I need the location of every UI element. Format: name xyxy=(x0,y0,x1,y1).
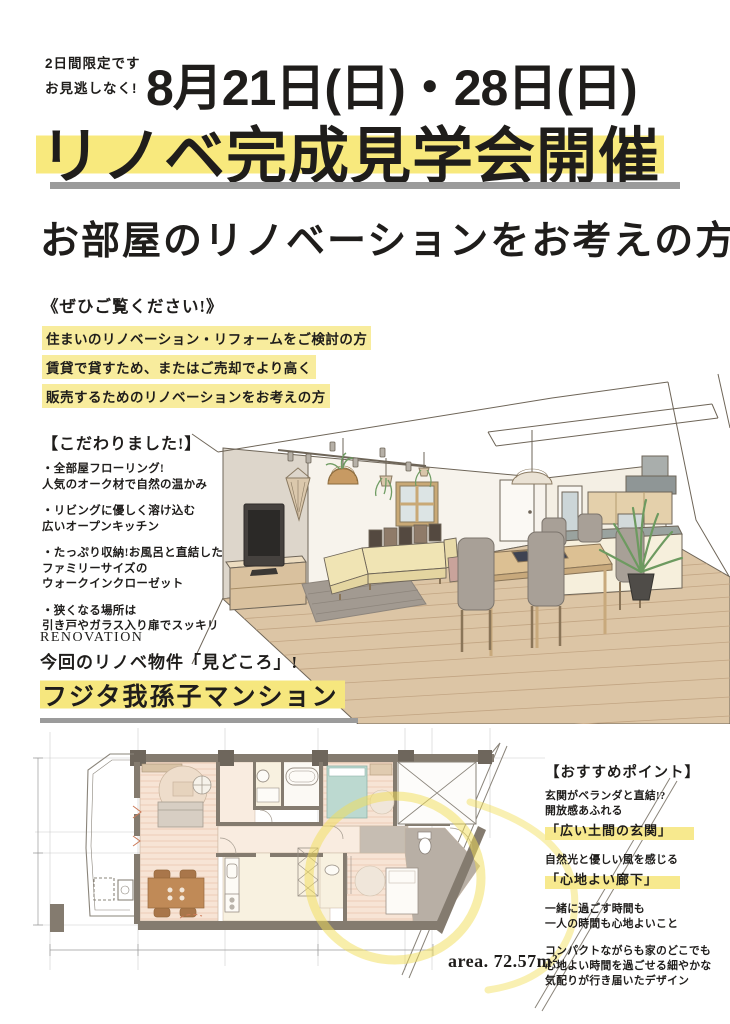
points-line: 玄関がベランダと直結!? xyxy=(545,789,727,804)
kodawari-heading: 【こだわりました!】 xyxy=(42,430,242,454)
divider-bar-renovation xyxy=(40,718,358,723)
tv xyxy=(244,504,284,576)
kodawari-item: ・全部屋フローリング! 人気のオーク材で自然の温かみ xyxy=(42,462,242,493)
headline: お部屋のリノベーションをお考えの方 xyxy=(40,210,730,266)
kodawari-line: ウォークインクローゼット xyxy=(42,577,242,593)
window xyxy=(396,482,438,526)
property-name: フジタ我孫子マンション xyxy=(40,676,345,714)
points-line: 開放感あふれる xyxy=(545,804,727,819)
points-group: 自然光と優しい風を感じる 「心地よい廊下」 xyxy=(545,853,727,890)
renovation-subtitle: 今回のリノベ物件「見どころ」! xyxy=(40,648,358,673)
limited-note-line1: 2日間限定です xyxy=(45,52,141,77)
invite-heading: 《ぜひご覧ください!》 xyxy=(42,293,371,317)
kodawari-line: ・たっぷり収納!お風呂と直結した xyxy=(42,546,242,562)
flyer-page: 2日間限定です お見逃しなく! 8月21日(日)・28日(日) リノベ完成見学会… xyxy=(0,0,730,1024)
kodawari-section: 【こだわりました!】 ・全部屋フローリング! 人気のオーク材で自然の温かみ ・リ… xyxy=(42,430,242,646)
points-highlight: 「心地よい廊下」 xyxy=(545,870,680,890)
divider-bar-top xyxy=(50,182,680,189)
kodawari-item: ・たっぷり収納!お風呂と直結した ファミリーサイズの ウォークインクローゼット xyxy=(42,546,242,593)
pendant-light xyxy=(512,430,552,484)
invite-highlight-line: 賃貸で貸すため、またはご売却でより高く xyxy=(42,355,316,379)
points-line: 気配りが行き届いたデザイン xyxy=(545,974,727,989)
kodawari-line: ・リビングに優しく溶け込む xyxy=(42,504,242,520)
points-highlight: 「広い土間の玄関」 xyxy=(545,821,694,841)
invite-highlight-line: 販売するためのリノベーションをお考えの方 xyxy=(42,384,330,408)
balcony xyxy=(86,754,134,916)
toilet xyxy=(418,832,431,854)
points-line: コンパクトながらも家のどこでも xyxy=(545,944,727,959)
points-line: 自然光と優しい風を感じる xyxy=(545,853,727,868)
kodawari-line: ・狭くなる場所は xyxy=(42,604,242,620)
invite-section: 《ぜひご覧ください!》 住まいのリノベーション・リフォームをご検討の方 賃貸で貸… xyxy=(42,293,371,413)
main-title-text: リノベ完成見学会開催 xyxy=(36,122,664,190)
points-group: 一緒に過ごす時間も 一人の時間も心地よいこと xyxy=(545,902,727,932)
limited-note-line2: お見逃しなく! xyxy=(45,77,141,102)
kodawari-line: 広いオープンキッチン xyxy=(42,520,242,536)
points-line: 一人の時間も心地よいこと xyxy=(545,917,727,932)
invite-highlight-line: 住まいのリノベーション・リフォームをご検討の方 xyxy=(42,326,371,350)
kodawari-item: ・リビングに優しく溶け込む 広いオープンキッチン xyxy=(42,504,242,535)
renovation-label: RENOVATION xyxy=(40,630,358,646)
points-group: コンパクトながらも家のどこでも 心地よい時間を過ごせる細やかな 気配りが行き届い… xyxy=(545,944,727,989)
points-line: 心地よい時間を過ごせる細やかな xyxy=(545,959,727,974)
points-line: 一緒に過ごす時間も xyxy=(545,902,727,917)
bedroom1-furniture xyxy=(327,764,394,818)
renovation-section: RENOVATION 今回のリノベ物件「見どころ」! フジタ我孫子マンション xyxy=(40,630,358,723)
points-group: 玄関がベランダと直結!? 開放感あふれる 「広い土間の玄関」 xyxy=(545,789,727,841)
kodawari-line: 人気のオーク材で自然の温かみ xyxy=(42,478,242,494)
kodawari-line: ファミリーサイズの xyxy=(42,562,242,578)
area-label: area. 72.57m² xyxy=(448,951,558,972)
limited-note: 2日間限定です お見逃しなく! xyxy=(45,52,141,102)
kodawari-line: ・全部屋フローリング! xyxy=(42,462,242,478)
points-section: 【おすすめポイント】 玄関がベランダと直結!? 開放感あふれる 「広い土間の玄関… xyxy=(545,761,727,1001)
points-heading: 【おすすめポイント】 xyxy=(545,761,727,782)
